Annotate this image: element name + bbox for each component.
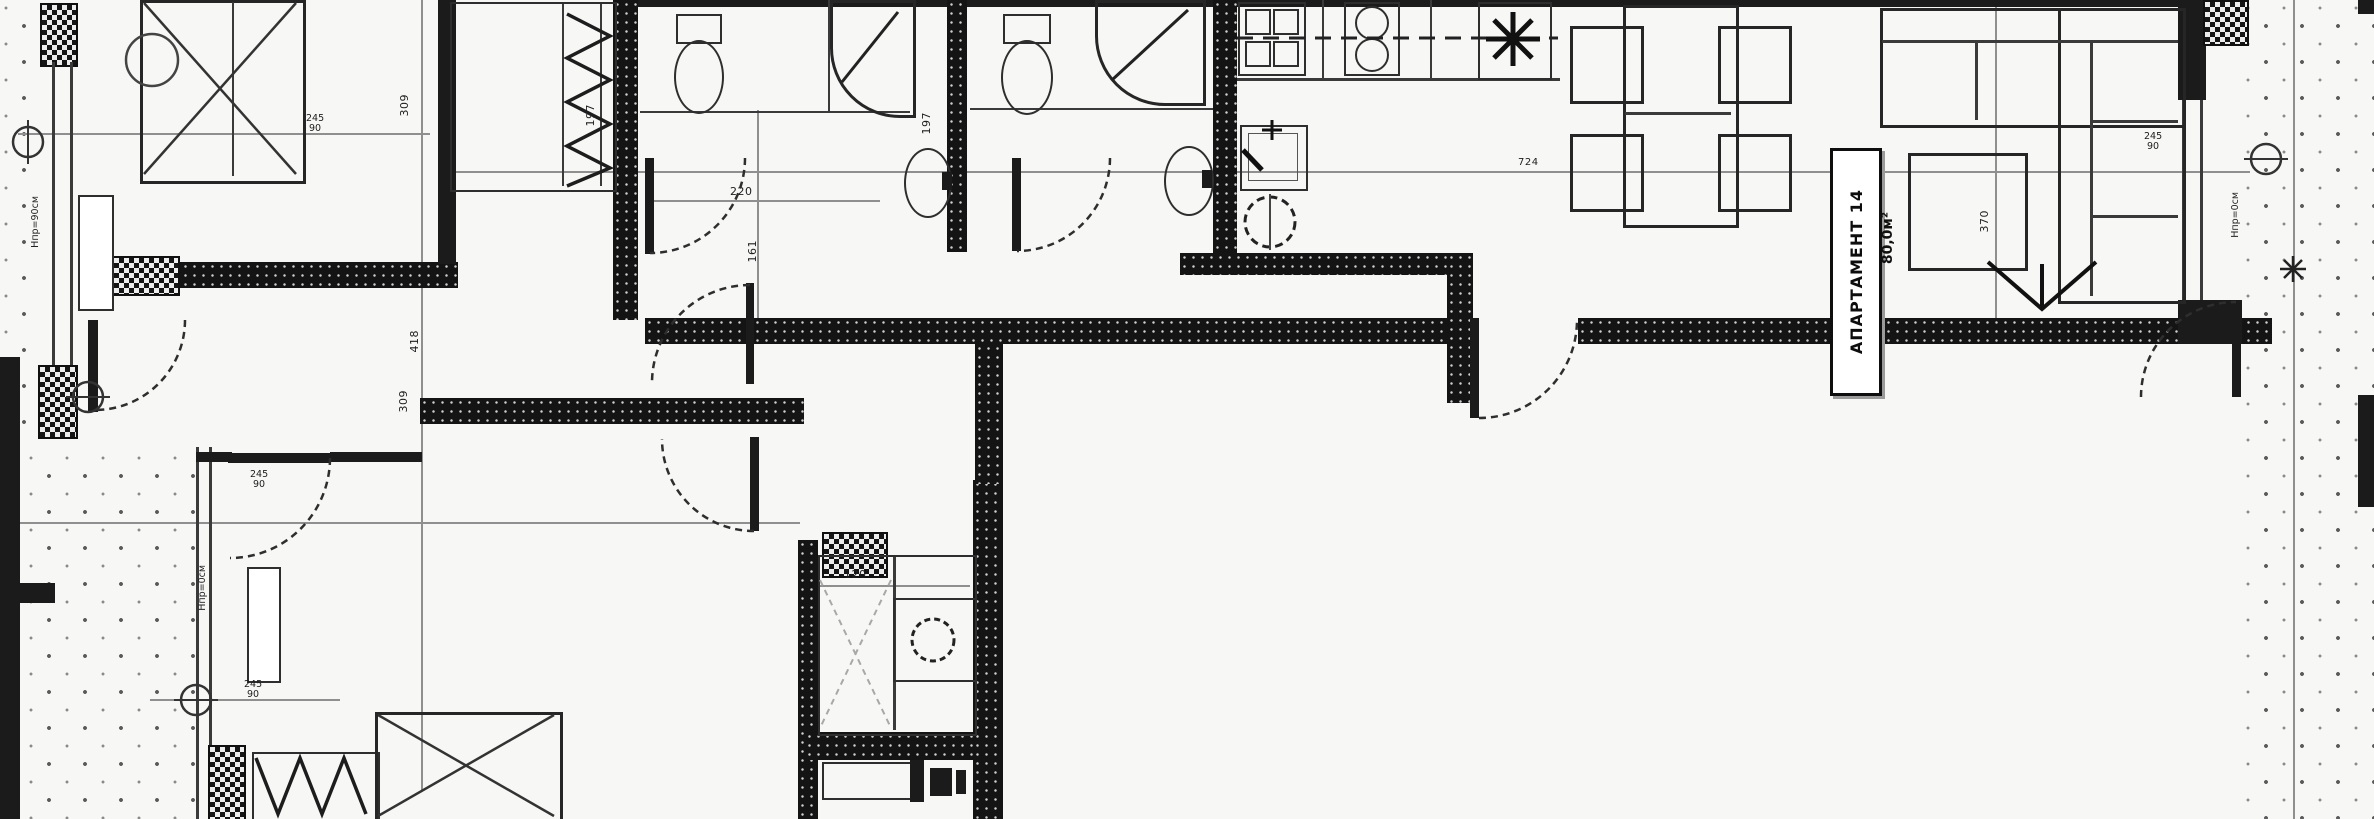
wall-fragment-right-top [2358,0,2374,14]
dim-bath-a-width: 220 [730,185,753,198]
wall-fragment-right-mid [2358,395,2374,507]
stove-burner-3 [1245,41,1271,67]
dim-line-h-hall [0,522,800,524]
coffee-table [1908,153,2028,271]
stove-burner-4 [1273,41,1299,67]
opening-dim-bedroom2-door: 245 90 [250,470,268,490]
wall-bath-divider [947,0,967,252]
wall-closet-left [798,540,818,819]
opening-dim-bedroom2-window: 245 90 [244,680,262,700]
chair-3 [1570,134,1644,212]
nightstand-bedroom1 [78,195,114,311]
dim-chain-309b: 309 [397,390,410,413]
dim-chain-309a: 309 [398,94,411,117]
floor-plan: АПАРТАМЕНТ 14 80,0м² 309 418 309 197 197… [0,0,2374,819]
wall-bedroom2-window-outer [196,447,199,819]
utility-shelf [822,762,912,800]
dim-corridor: 161 [746,240,759,263]
electric-panel-symbol-b [930,768,952,796]
dim-living-width: 370 [1978,210,1991,233]
opening-dim-bedroom1: 245 90 [306,114,324,134]
kitchen-counter-div-b [1430,0,1432,80]
sofa-vertical [2058,8,2186,304]
wall-hall-bottom [420,398,804,424]
sofa-cushion-line-b [2090,42,2093,296]
door-arc-entry [1479,320,1577,418]
dining-table-mid-line [1625,112,1731,115]
nightstand-bedroom2 [247,567,281,683]
kitchen-wash-basin-inner [1248,133,1298,181]
door-leaf-closet [750,437,759,531]
door-arc-bedroom2 [230,458,330,558]
chair-1 [1570,26,1644,104]
door-leaf-entry [1470,318,1479,418]
column-bedroom1-bottom [112,256,180,296]
door-leaf-bath-b [1012,158,1021,251]
dim-chain-418: 418 [408,330,421,353]
sofa-cushion-line-d [2092,215,2178,218]
wall-bottom-b [1578,318,2272,344]
wall-right-window-inner [2200,100,2203,300]
shower-a [830,0,916,118]
wall-kitchen-corridor [1180,253,1472,275]
apartment-title: АПАРТАМЕНТ 14 [1847,189,1866,354]
electric-panel-symbol-a [910,760,924,802]
wall-closet-link [975,344,1003,484]
terrace-left-bottom [25,450,196,819]
chair-4 [1718,134,1792,212]
dim-overall-width: 724 [1518,157,1539,168]
bath-b-shelf-line [970,108,1213,110]
wall-terrace2-stub [0,583,55,603]
bed-double [140,0,306,184]
wall-bedroom2-top-right [330,452,422,462]
apartment-area: 80,0м² [1880,212,1896,264]
wardrobe1-divider-b [600,4,602,186]
dim-line-v-chain [421,0,423,790]
door-leaf-bedroom2 [228,453,330,463]
apartment-label-box: АПАРТАМЕНТ 14 [1830,148,1882,396]
wall-bedroom2-top-left [196,452,232,462]
kitchen-sink-bowl-1 [1355,6,1389,40]
door-arc-closet [662,439,754,531]
door-leaf-terrace [2232,300,2241,397]
opening-dim-living-window: 245 90 [2144,132,2162,152]
wall-closet-right [973,480,1003,819]
chair-2 [1718,26,1792,104]
column-left-mid [38,365,78,439]
dim-closet-width: 120 [844,568,867,581]
door-arc-bedroom1 [95,320,185,410]
column-bedroom2-bottom [208,745,246,819]
bed-bedroom2 [375,712,563,819]
wall-left-window-inner [70,62,73,367]
door-leaf-bath-a [645,158,654,254]
toilet-a-bowl [674,40,724,114]
column-right-top [2203,0,2249,46]
hob-unit [1478,2,1552,80]
door-leaf-corridor [746,283,754,384]
door-leaf-bedroom1 [88,320,98,412]
note-parapet-bedroom2: Нпр=0см [197,565,208,611]
shower-b [1095,0,1206,106]
sofa-back-line [1882,40,2178,43]
dim-line-v-terrace [2293,0,2295,819]
stove-burner-1 [1245,9,1271,35]
dim-line-h-bath-a [648,200,880,202]
wardrobe1-divider-a [562,4,564,186]
note-parapet-left: Нпр=90см [30,196,41,248]
electric-panel-symbol-c [956,770,966,794]
wall-kitchen-left [1213,0,1237,256]
dim-bath-a-depth: 197 [584,104,597,127]
note-parapet-terrace: Нпр=0см [2230,192,2241,238]
boiler-icon [1245,197,1295,247]
bed-divider-line [232,2,234,176]
wall-left-window-outer [52,62,55,367]
sofa-cushion-line-a [1975,42,1978,120]
terrace-right [2242,0,2374,819]
dim-bath-b-depth: 197 [920,112,933,135]
kitchen-sink-bowl-2 [1355,38,1389,72]
wall-bottom-a [645,318,1472,344]
toilet-b-bowl [1001,40,1053,115]
wall-closet-bottom [805,732,975,760]
stove-burner-2 [1273,9,1299,35]
dim-line-v-corridor [757,110,759,318]
wardrobe-bedroom2 [252,752,380,819]
column-left-top [40,3,78,67]
sink-b-tap [1202,170,1212,188]
washing-machine [893,598,977,682]
sink-a-tap [942,172,952,190]
sofa-cushion-line-c [2092,120,2178,123]
wardrobe-bedroom1 [450,2,617,192]
kitchen-counter-div-a [1322,0,1324,80]
